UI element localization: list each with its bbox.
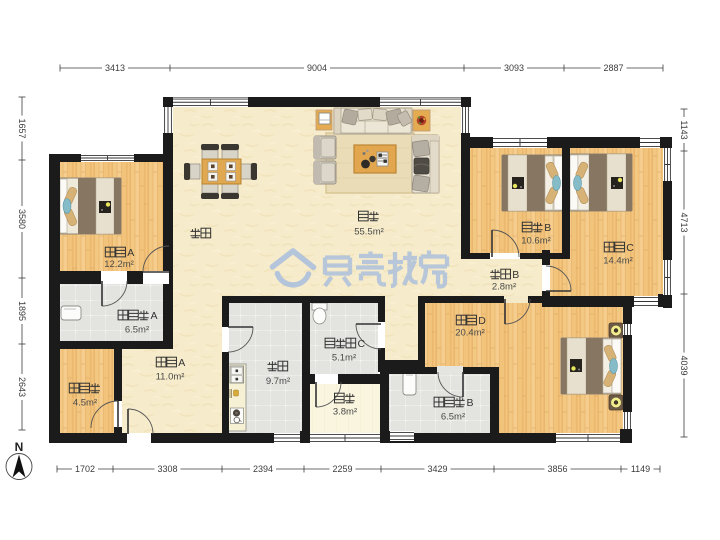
svg-text:11.0m²: 11.0m²	[156, 371, 185, 382]
svg-text:C: C	[626, 242, 634, 254]
svg-text:6.5m²: 6.5m²	[125, 324, 149, 335]
svg-text:3093: 3093	[504, 63, 524, 73]
svg-text:1702: 1702	[75, 464, 95, 474]
svg-text:10.6m²: 10.6m²	[521, 235, 551, 246]
svg-text:4.5m²: 4.5m²	[73, 397, 97, 408]
svg-text:B: B	[467, 397, 474, 409]
svg-text:3856: 3856	[547, 464, 567, 474]
svg-text:55.5m²: 55.5m²	[354, 226, 384, 237]
svg-text:9.7m²: 9.7m²	[266, 376, 290, 387]
svg-text:A: A	[178, 357, 185, 369]
svg-text:B: B	[512, 269, 519, 281]
svg-text:3308: 3308	[157, 464, 177, 474]
svg-text:1149: 1149	[631, 464, 650, 474]
svg-text:N: N	[15, 440, 24, 454]
svg-text:5.1m²: 5.1m²	[332, 352, 356, 363]
svg-text:2394: 2394	[253, 464, 273, 474]
svg-text:1895: 1895	[17, 301, 27, 321]
svg-text:14.4m²: 14.4m²	[603, 255, 633, 266]
svg-text:2887: 2887	[603, 63, 623, 73]
svg-text:D: D	[478, 315, 486, 327]
svg-text:9004: 9004	[307, 63, 327, 73]
svg-text:3.8m²: 3.8m²	[333, 406, 357, 417]
svg-text:1657: 1657	[17, 118, 27, 138]
svg-text:6.5m²: 6.5m²	[441, 411, 465, 422]
svg-text:20.4m²: 20.4m²	[455, 327, 485, 338]
svg-text:3413: 3413	[105, 63, 125, 73]
svg-text:3580: 3580	[17, 209, 27, 229]
svg-text:2.8m²: 2.8m²	[492, 281, 516, 292]
svg-text:3429: 3429	[427, 464, 447, 474]
svg-text:2643: 2643	[17, 377, 27, 397]
svg-text:12.2m²: 12.2m²	[104, 259, 134, 270]
svg-text:A: A	[151, 310, 158, 322]
svg-text:B: B	[544, 222, 551, 234]
svg-text:C: C	[358, 338, 366, 350]
svg-text:1143: 1143	[679, 120, 689, 139]
svg-text:2259: 2259	[332, 464, 352, 474]
svg-text:4713: 4713	[679, 212, 689, 232]
svg-text:4039: 4039	[679, 355, 689, 375]
svg-text:A: A	[127, 247, 134, 259]
